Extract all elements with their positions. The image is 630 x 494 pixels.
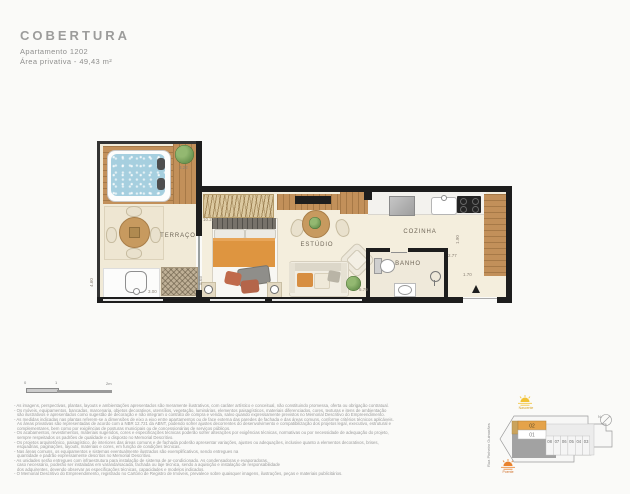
dim-hall-width: 2.77: [448, 253, 457, 258]
terrace-table-center: [129, 227, 140, 238]
fridge-icon: [389, 196, 415, 216]
apartment-number: Apartamento 1202: [20, 47, 88, 56]
tv-icon: [295, 196, 331, 204]
private-area: Área privativa - 49,43 m²: [20, 57, 112, 66]
window-studio: [210, 299, 265, 301]
burner-icon: [472, 198, 479, 205]
bath-door-leaf: [391, 252, 407, 253]
burner-icon: [472, 206, 479, 213]
dim-terrace-depth: 4.60: [89, 278, 94, 287]
unit-cell-label: 08: [547, 439, 552, 444]
dim-kitchen-depth: 1.90: [455, 235, 460, 244]
shower-head-icon: [430, 271, 441, 282]
lamp-icon: [204, 285, 213, 294]
bath-basin-icon: [398, 285, 412, 295]
brochure-page: COBERTURA Apartamento 1202 Área privativ…: [0, 0, 630, 494]
terrace-grate: [161, 267, 198, 296]
sofa-cushion-gray: [327, 270, 341, 283]
terrace-plant-icon: [175, 145, 194, 164]
closet: [203, 194, 274, 218]
room-label-bathroom: BANHO: [392, 261, 424, 267]
jacuzzi-headrest: [157, 158, 165, 170]
wall-terrace-left: [97, 141, 100, 302]
dim-entry-width: 1.70: [463, 272, 472, 277]
scalebar-tick-0: 0: [24, 380, 26, 385]
wall-bottom-right: [497, 297, 512, 303]
room-label-studio: ESTÚDIO: [293, 242, 341, 248]
wall-bath-top-right: [408, 248, 448, 252]
window-living: [272, 299, 362, 301]
sofa-back: [291, 263, 345, 271]
sun-east-icon: [517, 395, 533, 406]
room-label-kitchen: COZINHA: [396, 229, 444, 235]
terrace-faucet-icon: [133, 288, 140, 295]
bed-blanket: [213, 238, 275, 267]
unit-01-label: 01: [529, 433, 535, 439]
kitchen-faucet-icon: [441, 195, 447, 201]
disclaimer-block: - As imagens, perspectivas, plantas, lay…: [14, 404, 464, 477]
terrace-chair: [126, 206, 142, 217]
dim-terrace-width: 3.00: [148, 289, 157, 294]
bed-cushion-terracotta: [240, 279, 259, 294]
terrace-chair: [126, 248, 142, 259]
jacuzzi-headrest: [157, 178, 165, 190]
shower-spray-icon: [434, 280, 435, 286]
scalebar-segment-2: [57, 390, 112, 393]
unit-cell-label: 05: [569, 439, 574, 444]
unit-cell-label: 03: [584, 439, 589, 444]
wall-pillar: [364, 190, 372, 200]
wall-terrace-top: [97, 141, 202, 144]
studio-table-plant-icon: [309, 217, 321, 229]
dim-studio-depth: 5.03: [198, 276, 203, 285]
entry-arrow-icon: [472, 285, 480, 293]
unit-cell-label: 06: [562, 439, 567, 444]
dim-deck: 3.22: [179, 165, 188, 170]
scalebar-tick-1: 1: [55, 380, 57, 385]
lamp-icon: [270, 285, 279, 294]
bed-headboard: [212, 218, 276, 229]
unit-cell-label: 07: [555, 439, 560, 444]
wall-right: [506, 186, 512, 303]
wall-main-top: [196, 186, 512, 192]
burner-icon: [460, 198, 467, 205]
disclaimer-line: - O Memorial Descritivo do Empreendiment…: [14, 472, 464, 477]
room-label-terrace: TERRAÇO: [156, 233, 200, 239]
unit-cell-label: 04: [576, 439, 581, 444]
page-title: COBERTURA: [20, 28, 130, 43]
window-terrace: [103, 299, 163, 301]
scalebar-tick-2m: 2m: [106, 381, 112, 386]
entry-door-leaf: [463, 298, 497, 299]
scalebar-segment-1: [26, 388, 59, 393]
sofa-arm: [341, 263, 347, 293]
sun-east-label: Nascente: [512, 406, 540, 410]
sofa-cushion-orange: [297, 273, 313, 287]
unit-02-balcony: [512, 421, 518, 434]
dim-studio-width: 5.79: [359, 287, 368, 292]
dim-studio-length: 10.27: [203, 217, 214, 222]
burner-icon: [460, 206, 467, 213]
kitchen-tall-cabinet: [484, 194, 506, 276]
site-key-plan: 02 01 08 07 06 05 04 03 N: [496, 412, 630, 468]
terrace-chair: [106, 227, 117, 243]
sofa-arm: [289, 263, 295, 293]
north-label: N: [598, 414, 601, 419]
street-name: Rua Pinheiro Guimarães: [486, 411, 491, 467]
sun-west-label: Poente: [494, 470, 522, 474]
unit-02-label: 02: [529, 424, 535, 430]
